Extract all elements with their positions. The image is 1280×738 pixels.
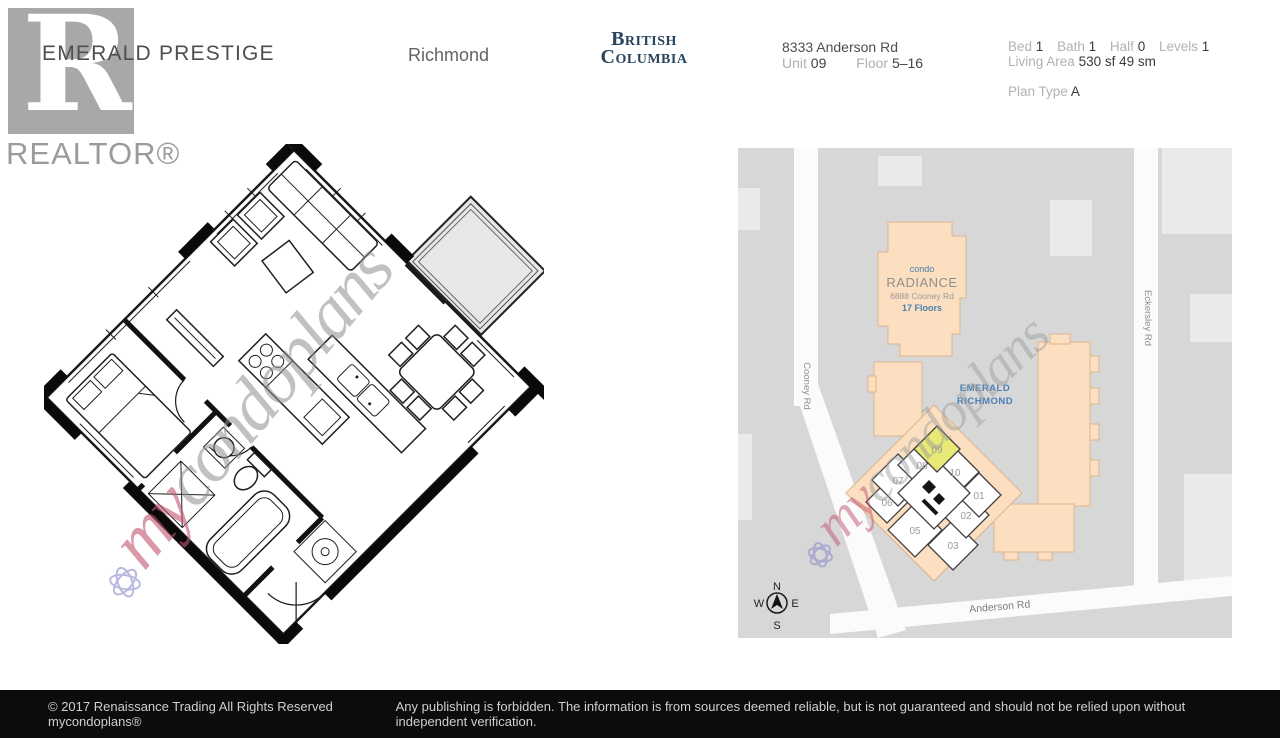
bed-value: 1	[1036, 39, 1044, 54]
svg-text:S: S	[773, 620, 780, 632]
plan-type-value: A	[1071, 84, 1080, 99]
east-building	[1038, 342, 1090, 506]
levels-value: 1	[1202, 39, 1210, 54]
bath-value: 1	[1089, 39, 1097, 54]
realtor-logo: R	[8, 8, 134, 134]
svg-text:17 Floors: 17 Floors	[902, 303, 942, 313]
city-label: Richmond	[408, 45, 489, 66]
unit-floor-line: Unit 09 Floor 5–16	[782, 55, 923, 71]
bath-label: Bath	[1057, 39, 1085, 54]
half-value: 0	[1138, 39, 1146, 54]
svg-text:E: E	[791, 598, 798, 610]
unit-label: Unit	[782, 55, 807, 71]
svg-text:03: 03	[947, 541, 959, 552]
svg-text:01: 01	[973, 491, 985, 502]
cooney-road-label: Cooney Rd	[801, 362, 812, 410]
svg-text:05: 05	[909, 526, 921, 537]
unit-value: 09	[811, 55, 827, 71]
stats-row: Bed 1 Bath 1 Half 0 Levels 1	[1008, 39, 1209, 54]
plan-type-label: Plan Type	[1008, 84, 1068, 99]
south-building	[994, 504, 1074, 552]
site-map-svg: 07 08 09 10 01 06 02 05 03 condo RADIANC…	[738, 148, 1232, 638]
floor-value: 5–16	[892, 55, 923, 71]
svg-text:N: N	[773, 581, 781, 593]
bc-logo-line2: Columbia	[594, 48, 694, 66]
living-area-sm: 49 sm	[1119, 54, 1156, 69]
bed-label: Bed	[1008, 39, 1032, 54]
svg-text:RADIANCE: RADIANCE	[886, 275, 957, 290]
svg-text:condo: condo	[910, 264, 935, 274]
living-area-row: Living Area 530 sf 49 sm	[1008, 54, 1156, 69]
footer-copyright: © 2017 Renaissance Trading All Rights Re…	[48, 699, 396, 729]
eckersley-road	[1134, 148, 1158, 586]
svg-text:10: 10	[949, 468, 961, 479]
floor-label: Floor	[856, 55, 888, 71]
page-title: EMERALD PRESTIGE	[42, 42, 275, 66]
floorplan-svg: mycondoplans	[44, 144, 544, 644]
living-area-sf: 530 sf	[1079, 54, 1116, 69]
levels-label: Levels	[1159, 39, 1198, 54]
footer-bar: © 2017 Renaissance Trading All Rights Re…	[0, 690, 1280, 738]
eckersley-road-label: Eckersley Rd	[1142, 290, 1153, 346]
plan-type-row: Plan Type A	[1008, 84, 1080, 99]
realtor-logo-r: R	[22, 8, 132, 134]
svg-text:02: 02	[960, 511, 972, 522]
svg-text:W: W	[754, 598, 765, 610]
svg-text:6888 Cooney Rd: 6888 Cooney Rd	[890, 291, 954, 301]
street-address: 8333 Anderson Rd	[782, 39, 898, 55]
british-columbia-logo: British Columbia	[594, 30, 694, 67]
living-area-label: Living Area	[1008, 54, 1075, 69]
footer-disclaimer: Any publishing is forbidden. The informa…	[396, 699, 1246, 729]
half-label: Half	[1110, 39, 1134, 54]
